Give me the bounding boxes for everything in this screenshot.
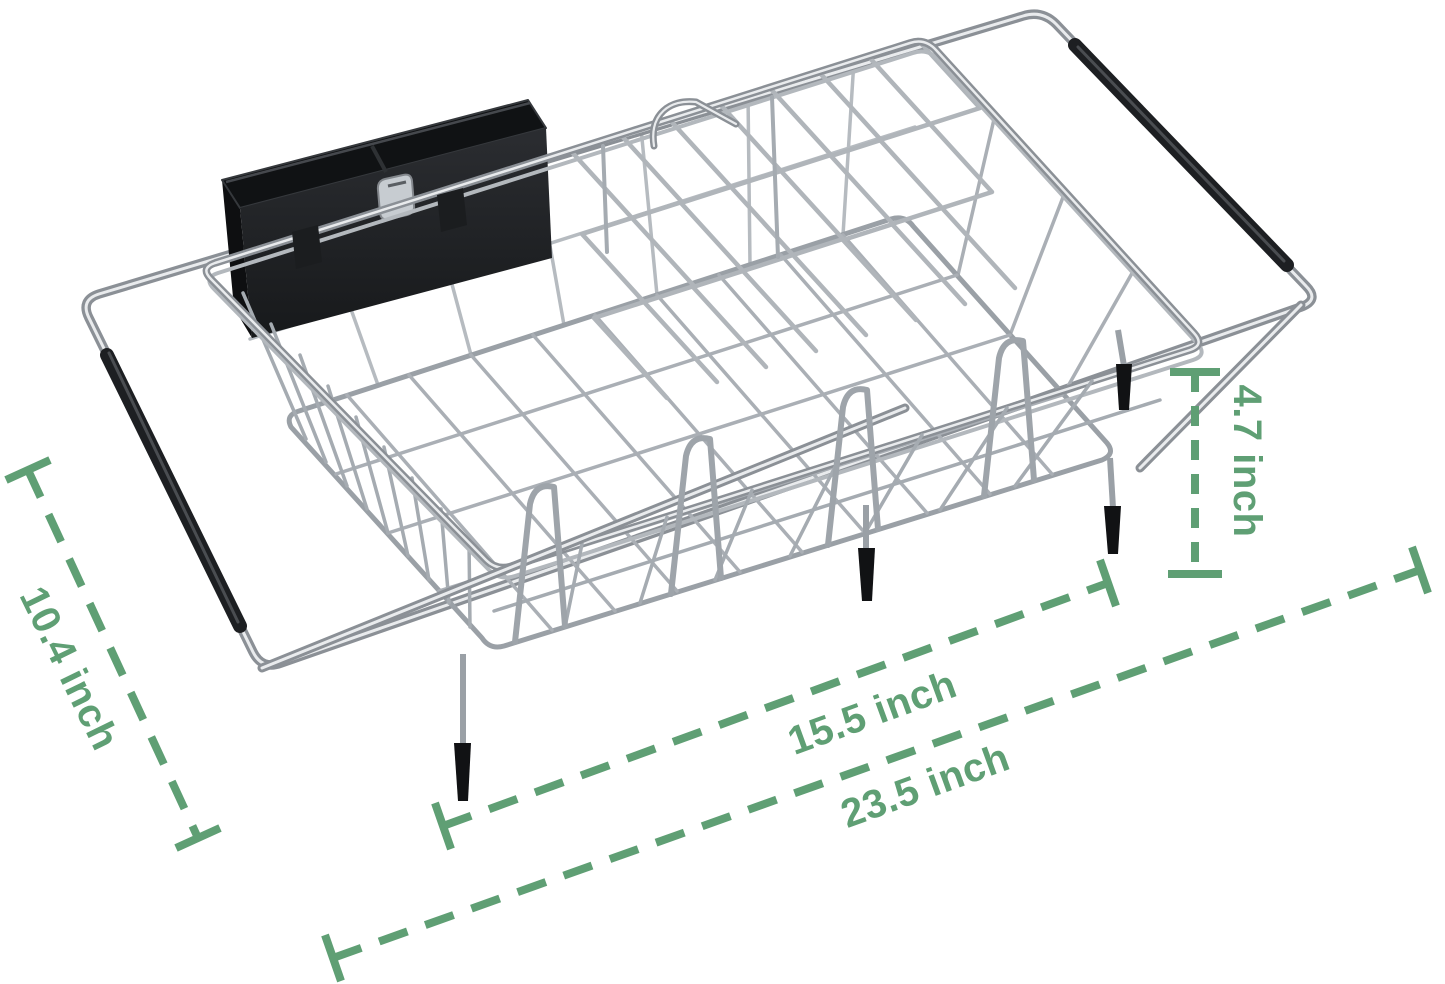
dish-rack-illustration: 10.4 inch 15.5 inch 23.5 inch 4.7 inch: [0, 0, 1445, 984]
height-dimension-label: 4.7 inch: [1225, 385, 1269, 538]
extended-length-dimension: [325, 547, 1428, 981]
rubber-foot: [1116, 364, 1132, 410]
width-dimension-label: 10.4 inch: [11, 580, 128, 757]
height-dimension: [1168, 372, 1222, 574]
dimension-annotations: [6, 372, 1428, 981]
basket-front-wall: [494, 381, 1160, 627]
plate-dividers: [570, 40, 1015, 398]
product-image: 10.4 inch 15.5 inch 23.5 inch 4.7 inch: [0, 0, 1445, 984]
rubber-foot: [454, 743, 471, 801]
extended-length-dimension-label: 23.5 inch: [835, 735, 1015, 836]
rubber-foot: [858, 548, 875, 601]
rack-length-dimension: [435, 560, 1116, 849]
rubber-foot: [1104, 506, 1121, 554]
rack-length-dimension-label: 15.5 inch: [782, 662, 962, 763]
